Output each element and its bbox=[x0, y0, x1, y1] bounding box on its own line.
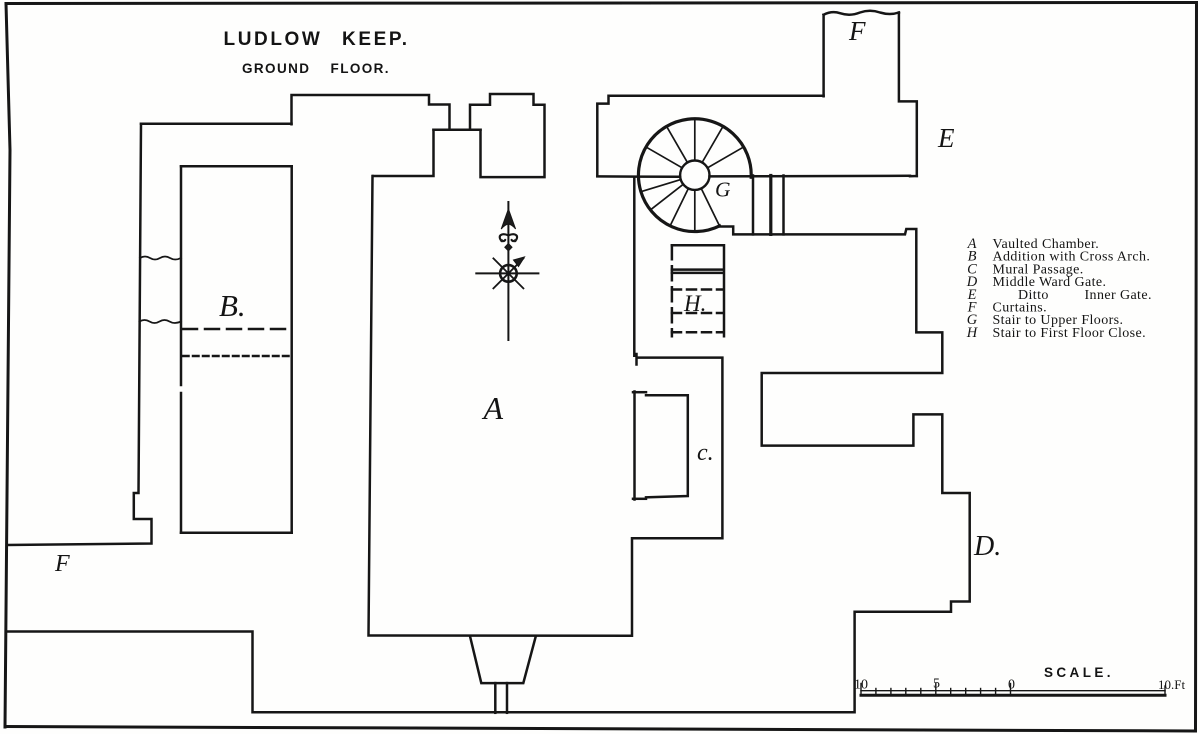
svg-text:Stair to First Floor Close.: Stair to First Floor Close. bbox=[993, 326, 1147, 341]
svg-text:c.: c. bbox=[697, 440, 714, 466]
svg-text:10: 10 bbox=[854, 678, 868, 693]
svg-text:10.Ft: 10.Ft bbox=[1158, 677, 1185, 692]
svg-text:LUDLOW KEEP.: LUDLOW KEEP. bbox=[224, 29, 410, 50]
svg-text:GROUND FLOOR.: GROUND FLOOR. bbox=[242, 61, 390, 76]
svg-text:E: E bbox=[937, 123, 955, 153]
svg-text:F: F bbox=[848, 16, 866, 46]
svg-text:H.: H. bbox=[683, 291, 706, 316]
svg-text:SCALE.: SCALE. bbox=[1044, 665, 1114, 680]
svg-text:D.: D. bbox=[973, 531, 1001, 562]
svg-text:0: 0 bbox=[1008, 678, 1015, 693]
svg-text:H: H bbox=[966, 325, 979, 341]
svg-text:G: G bbox=[715, 178, 731, 202]
svg-text:F: F bbox=[54, 551, 70, 577]
svg-text:A: A bbox=[482, 390, 504, 426]
svg-text:B.: B. bbox=[219, 288, 246, 323]
svg-text:Inner Gate.: Inner Gate. bbox=[1085, 288, 1152, 303]
svg-text:5: 5 bbox=[933, 677, 940, 692]
